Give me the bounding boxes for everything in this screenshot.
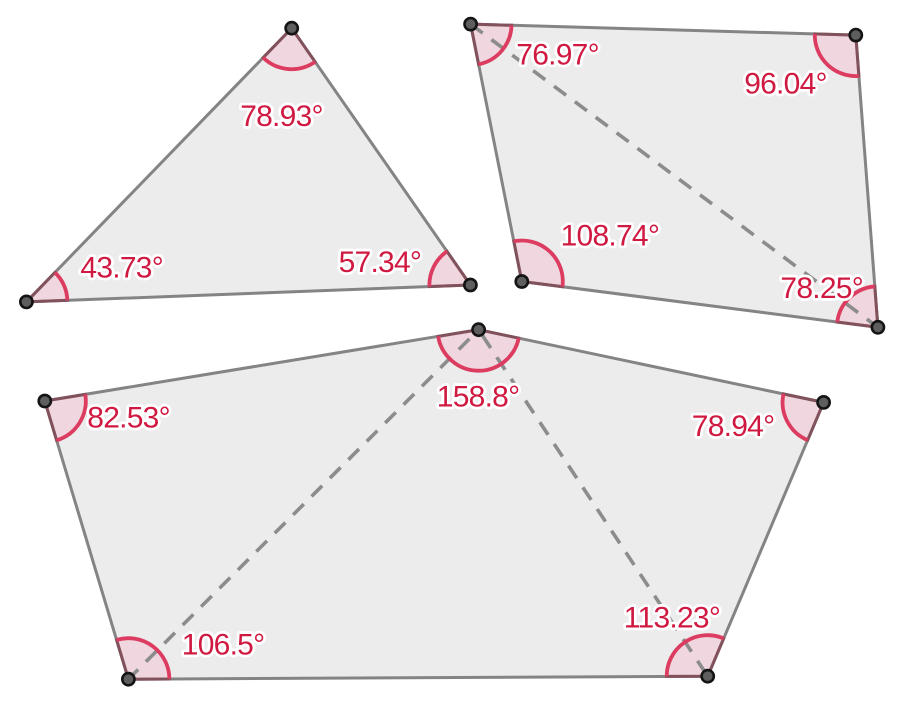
- svg-text:108.74°: 108.74°: [561, 220, 660, 253]
- svg-text:158.8°: 158.8°: [437, 380, 520, 413]
- svg-text:78.25°: 78.25°: [780, 272, 863, 305]
- svg-text:78.93°: 78.93°: [240, 100, 323, 133]
- svg-text:113.23°: 113.23°: [624, 602, 720, 635]
- svg-text:106.5°: 106.5°: [182, 629, 265, 662]
- svg-text:78.94°: 78.94°: [692, 410, 775, 443]
- svg-text:43.73°: 43.73°: [80, 252, 163, 285]
- svg-text:76.97°: 76.97°: [516, 39, 599, 72]
- svg-text:96.04°: 96.04°: [744, 67, 827, 100]
- svg-text:82.53°: 82.53°: [87, 402, 170, 435]
- svg-text:57.34°: 57.34°: [339, 246, 422, 279]
